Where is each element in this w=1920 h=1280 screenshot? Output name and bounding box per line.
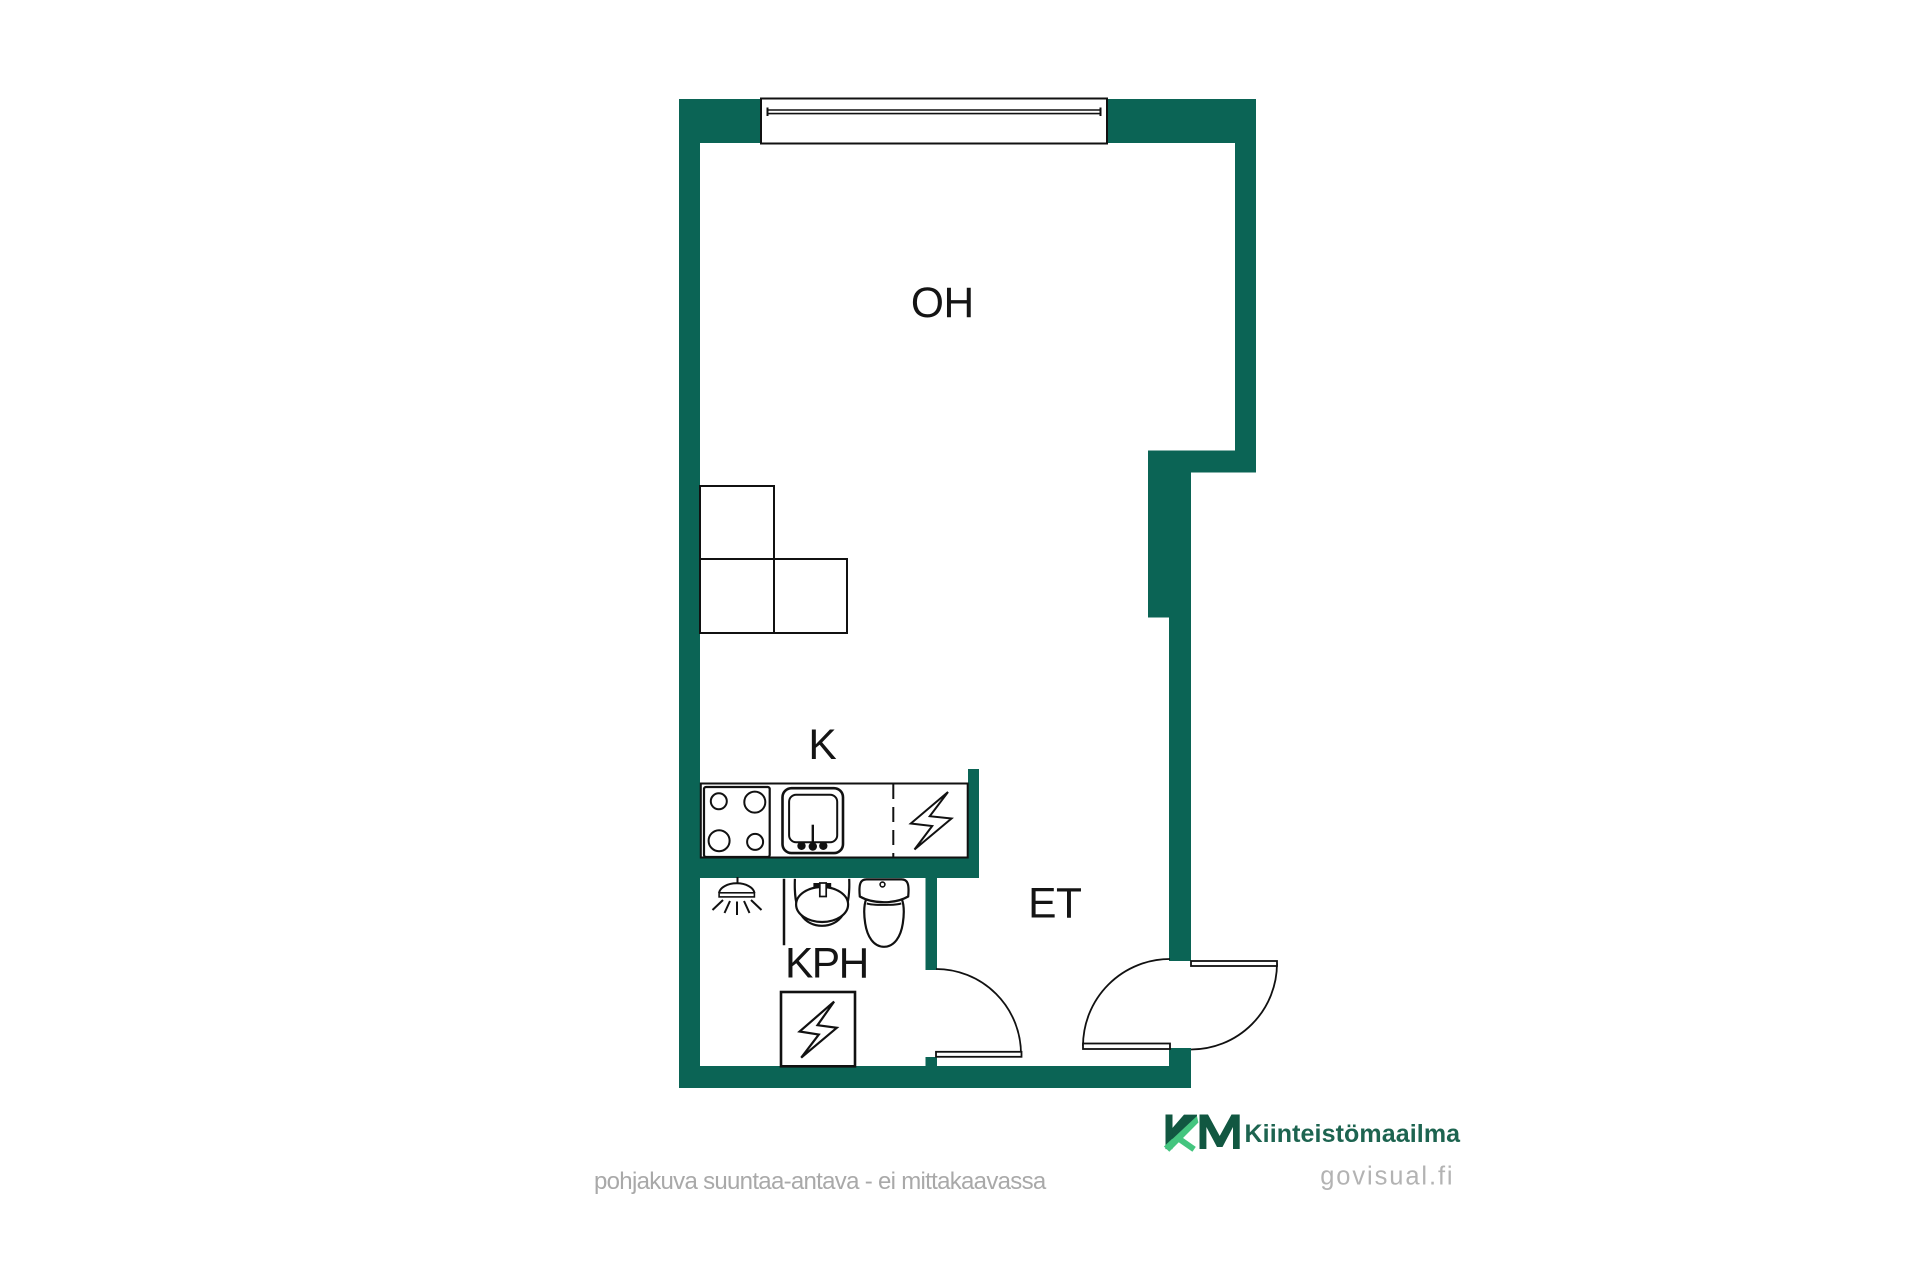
svg-text:KPH: KPH — [785, 941, 868, 988]
svg-text:govisual.fi: govisual.fi — [1320, 1163, 1454, 1191]
svg-text:OH: OH — [911, 280, 974, 327]
svg-text:pohjakuva suuntaa-antava - ei: pohjakuva suuntaa-antava - ei mittakaava… — [594, 1168, 1047, 1195]
svg-text:Kiinteistömaailma: Kiinteistömaailma — [1245, 1120, 1462, 1148]
svg-text:K: K — [808, 722, 836, 769]
svg-text:ET: ET — [1028, 880, 1081, 927]
